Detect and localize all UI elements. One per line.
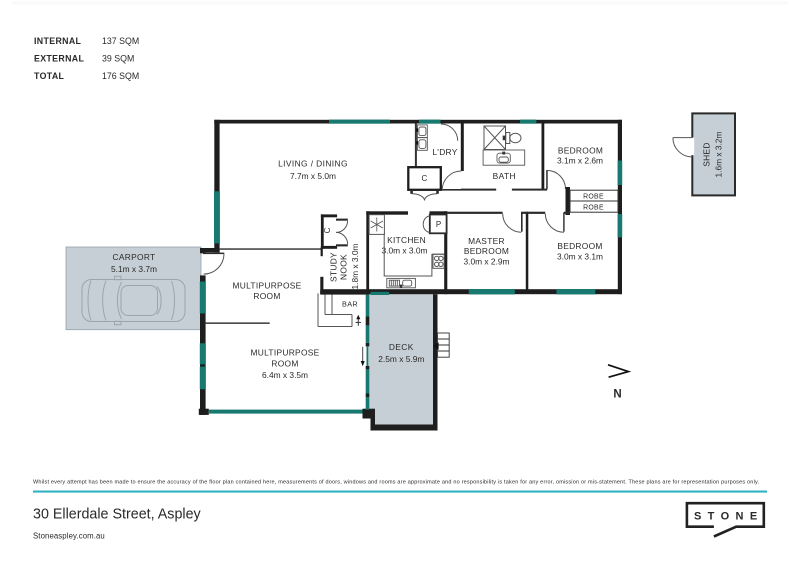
svg-text:7.7m x 5.0m: 7.7m x 5.0m: [290, 171, 336, 181]
svg-text:C: C: [422, 174, 428, 183]
svg-text:EXTERNAL: EXTERNAL: [34, 54, 84, 64]
svg-text:MULTIPURPOSE: MULTIPURPOSE: [250, 347, 319, 357]
svg-text:3.0m x 3.1m: 3.0m x 3.1m: [557, 251, 603, 261]
svg-text:3.1m x 2.6m: 3.1m x 2.6m: [557, 156, 603, 166]
svg-text:ROOM: ROOM: [271, 358, 298, 368]
svg-text:137 SQM: 137 SQM: [102, 36, 139, 46]
svg-text:LIVING / DINING: LIVING / DINING: [278, 159, 348, 169]
svg-text:MASTER: MASTER: [468, 236, 505, 246]
svg-text:P: P: [436, 220, 441, 229]
svg-text:C: C: [323, 227, 332, 233]
svg-text:Stoneaspley.com.au: Stoneaspley.com.au: [33, 531, 105, 540]
svg-text:6.4m x 3.5m: 6.4m x 3.5m: [262, 370, 308, 380]
svg-text:3.0m x 3.0m: 3.0m x 3.0m: [381, 246, 427, 256]
svg-text:CARPORT: CARPORT: [113, 252, 156, 262]
svg-text:BATH: BATH: [493, 171, 516, 181]
svg-text:KITCHEN: KITCHEN: [387, 235, 426, 245]
svg-text:ROOM: ROOM: [253, 291, 280, 301]
svg-text:1.6m x 3.2m: 1.6m x 3.2m: [714, 131, 724, 177]
svg-text:MULTIPURPOSE: MULTIPURPOSE: [232, 280, 301, 290]
svg-text:3.0m x 2.9m: 3.0m x 2.9m: [463, 256, 509, 266]
svg-text:DECK: DECK: [389, 342, 414, 352]
svg-text:STUDY: STUDY: [329, 252, 339, 282]
svg-text:BEDROOM: BEDROOM: [558, 146, 603, 156]
svg-text:SHED: SHED: [702, 142, 712, 166]
svg-text:BEDROOM: BEDROOM: [557, 241, 602, 251]
svg-text:176 SQM: 176 SQM: [102, 71, 139, 81]
svg-text:1.8m x 3.0m: 1.8m x 3.0m: [350, 243, 360, 289]
svg-text:STONE: STONE: [694, 510, 764, 522]
svg-text:ROBE: ROBE: [583, 205, 604, 212]
svg-text:ROBE: ROBE: [583, 194, 604, 201]
svg-text:INTERNAL: INTERNAL: [34, 36, 82, 46]
svg-text:TOTAL: TOTAL: [34, 71, 65, 81]
svg-text:39 SQM: 39 SQM: [102, 54, 134, 64]
svg-text:5.1m x 3.7m: 5.1m x 3.7m: [111, 264, 157, 274]
svg-text:N: N: [613, 389, 621, 401]
svg-text:NOOK: NOOK: [339, 254, 349, 280]
svg-text:L'DRY: L'DRY: [432, 147, 457, 157]
svg-text:BEDROOM: BEDROOM: [464, 246, 509, 256]
svg-text:BAR: BAR: [342, 299, 358, 308]
svg-text:Whilst every attempt has been: Whilst every attempt has been made to en…: [33, 480, 760, 486]
svg-text:30 Ellerdale Street, Aspley: 30 Ellerdale Street, Aspley: [33, 507, 202, 523]
svg-text:2.5m x 5.9m: 2.5m x 5.9m: [378, 354, 424, 364]
